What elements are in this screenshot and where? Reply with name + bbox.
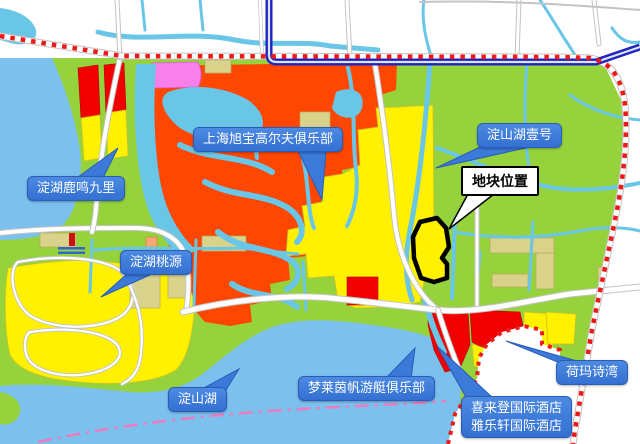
label-taoyuan: 淀湖桃源 <box>120 250 192 275</box>
tiny-marker-text <box>58 252 85 255</box>
parcel-pink <box>151 62 201 88</box>
label-hema: 荷玛诗湾 <box>556 360 628 385</box>
parcel-khaki <box>205 60 231 73</box>
parcel-yellow <box>81 115 102 161</box>
label-hotels: 喜来登国际酒店 雅乐轩国际酒店 <box>461 396 572 438</box>
parcel-red <box>78 65 100 118</box>
label-hotels-line1: 喜来登国际酒店 <box>471 399 562 417</box>
map-canvas: 淀湖鹿鸣九里 上海旭宝高尔夫俱乐部 淀山湖壹号 地块位置 淀湖桃源 淀山湖 梦莱… <box>0 0 640 444</box>
stream <box>90 240 92 292</box>
plot-outline <box>413 218 449 282</box>
tiny-marker <box>69 233 75 246</box>
tiny-marker-text <box>58 247 85 250</box>
parcel-yellow-hema <box>546 312 576 344</box>
label-marina: 梦莱茵帆游艇俱乐部 <box>298 376 435 401</box>
label-lake: 淀山湖 <box>168 387 227 412</box>
label-plot-location: 地块位置 <box>461 166 539 196</box>
parcel-khaki <box>300 112 330 128</box>
golf-lagoon <box>332 89 363 117</box>
label-hotels-line2: 雅乐轩国际酒店 <box>471 417 562 435</box>
label-luming: 淀湖鹿鸣九里 <box>27 176 125 201</box>
label-xubao: 上海旭宝高尔夫俱乐部 <box>193 127 343 152</box>
label-yihao: 淀山湖壹号 <box>477 123 562 148</box>
parcel-khaki <box>490 238 554 253</box>
road <box>517 0 519 58</box>
parcel-khaki <box>492 274 528 287</box>
parcel-khaki <box>536 253 554 289</box>
